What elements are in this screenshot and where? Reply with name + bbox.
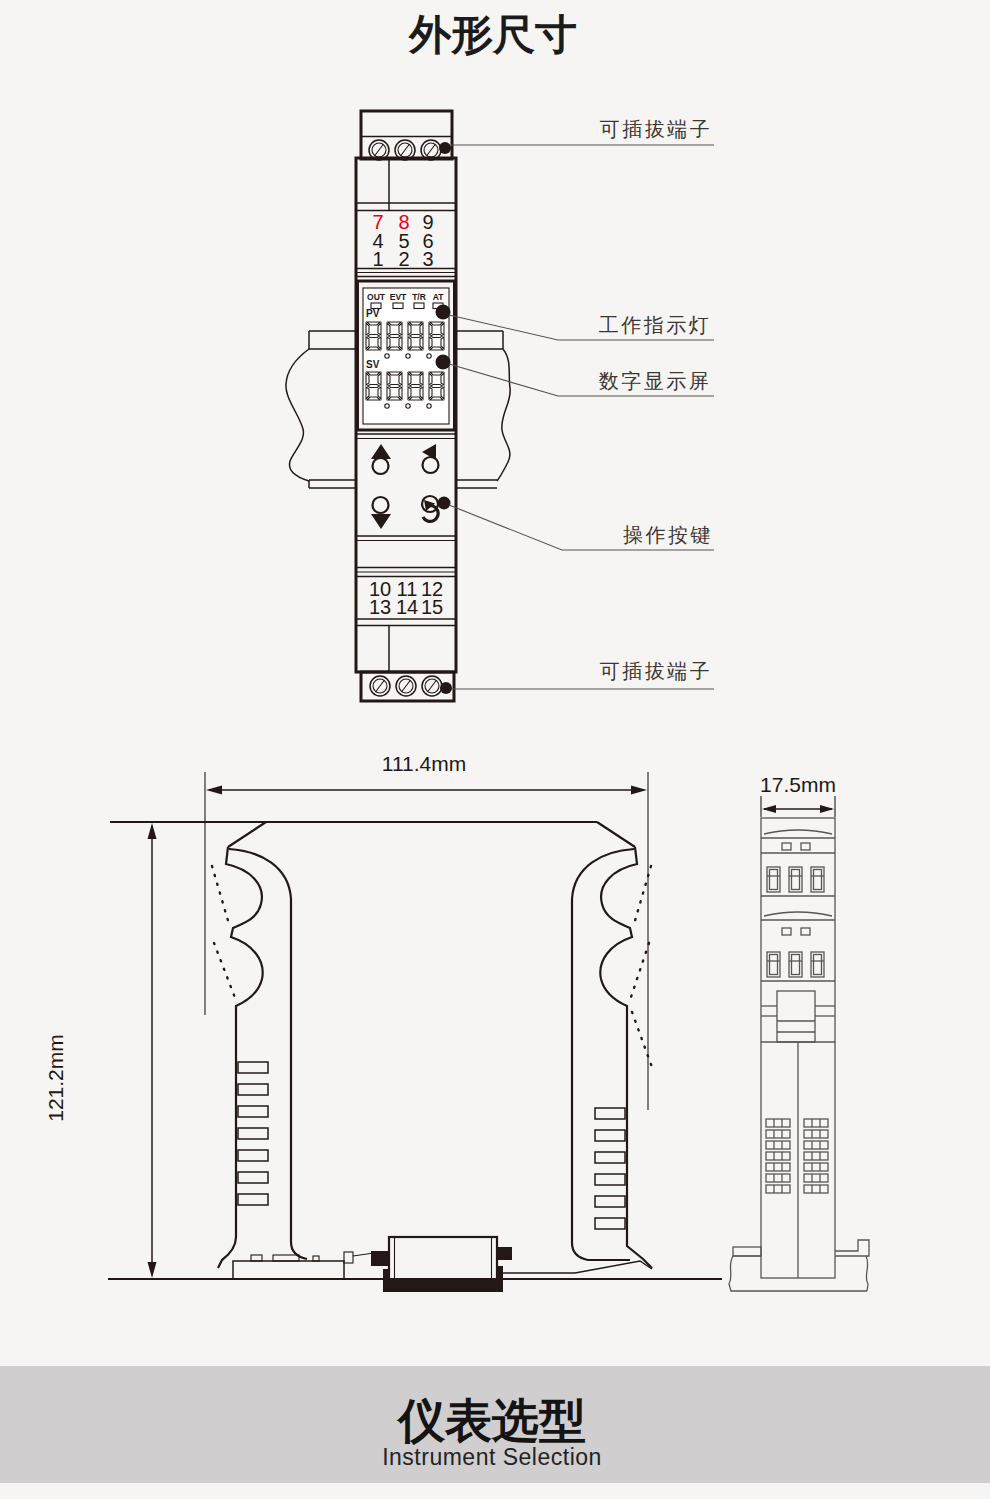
digital-display: OUT EVT T/R AT PV SV [358,281,455,430]
height-dimension: 121.2mm [44,823,157,1278]
down-arrow-icon [371,514,391,529]
callout-dot-status-led [436,305,451,320]
callout-label: 工作指示灯 [599,314,712,336]
depth-dimension: 17.5mm [760,773,836,817]
profile-chamfers [228,822,635,847]
arrowhead-up-icon [148,823,157,839]
terminal-number: 15 [421,596,443,618]
footer-title: 仪表选型 [396,1394,586,1447]
vent-slots-right [595,1108,625,1229]
callout-label: 操作按键 [623,524,713,546]
pv-label: PV [366,308,380,319]
arrowhead-left-icon [762,805,776,813]
arrowhead-left-icon [206,786,222,795]
side-view-drawing: 17.5mm [729,773,869,1291]
width-dimension-label: 111.4mm [382,752,466,775]
indicator-label: OUT [367,292,386,302]
up-button [373,458,389,474]
din-rail-cross-section-left [286,331,356,488]
screw-terminal-icon [370,676,390,696]
arrowhead-down-icon [148,1262,157,1278]
indicator-label: AT [433,292,445,302]
top-terminal-numbers: 7 8 9 4 5 6 1 2 3 [372,211,433,270]
callout-bottom-terminal: 可插拔端子 [452,660,714,689]
arrowhead-right-icon [820,805,834,813]
vent-grid-right [804,1119,828,1193]
diagram-canvas: 外形尺寸 7 8 9 [0,0,990,1499]
lower-cell-dividers [356,619,456,672]
page-title: 外形尺寸 [408,11,577,58]
bottom-terminal-block [361,672,454,701]
callout-status-leds: 工作指示灯 [449,314,714,340]
din-rail-clamp [371,1237,512,1292]
left-button [423,457,439,473]
top-terminal-block [361,111,452,160]
din-rail-cross-section-right [456,331,510,488]
depth-dimension-label: 17.5mm [760,773,836,796]
callout-label: 数字显示屏 [599,370,712,392]
dotted-break-lines [212,866,653,1070]
module-front-view: 7 8 9 4 5 6 1 2 3 OUT EVT T/R AT [356,111,456,701]
side-view-din-rail [729,1240,869,1291]
vent-slots-left [238,1062,268,1205]
terminal-number: 3 [422,248,433,270]
up-arrow-icon [371,444,391,459]
vent-grid-left [766,1119,790,1193]
terminal-number: 2 [398,248,409,270]
side-view-details [761,830,835,1278]
terminal-number: 1 [372,248,383,270]
terminal-number: 13 [369,596,391,618]
bottom-step-block [233,1252,374,1279]
callout-dot-buttons [438,497,451,510]
terminal-number: 14 [396,596,418,618]
callout-dot-display [436,355,451,370]
indicator-label: T/R [412,292,426,302]
operation-buttons [371,444,451,529]
page: 外形尺寸 7 8 9 [0,0,990,1499]
hatch-lines-lower [356,568,456,577]
screw-terminal-icon [396,676,416,696]
footer-section: 仪表选型 Instrument Selection [0,1366,990,1483]
callout-dot-top-terminal [439,142,451,154]
screw-terminal-icon [422,676,442,696]
width-dimension: 111.4mm [205,752,648,1110]
bottom-terminal-numbers: 10 11 12 13 14 15 [369,578,443,618]
callout-dot-bottom-terminal [440,682,452,694]
callout-top-terminal: 可插拔端子 [451,118,714,145]
height-dimension-label: 121.2mm [44,1034,67,1122]
callout-buttons: 操作按键 [449,505,714,550]
profile-bottom-right-edge [503,1261,652,1273]
arrowhead-right-icon [631,786,647,795]
footer-subtitle: Instrument Selection [382,1444,602,1470]
callout-label: 可插拔端子 [600,660,713,682]
profile-right-outer-edge [600,847,652,1268]
profile-dimension-drawing: 111.4mm 121.2mm [44,752,722,1292]
din-clamp-slider [777,991,815,1042]
callout-display: 数字显示屏 [449,364,714,396]
down-button [373,497,389,513]
callout-label: 可插拔端子 [600,118,713,140]
upper-cell-dividers [356,158,456,211]
loop-arrow-icon [423,505,438,521]
sv-label: SV [366,359,380,370]
indicator-label: EVT [390,292,407,302]
